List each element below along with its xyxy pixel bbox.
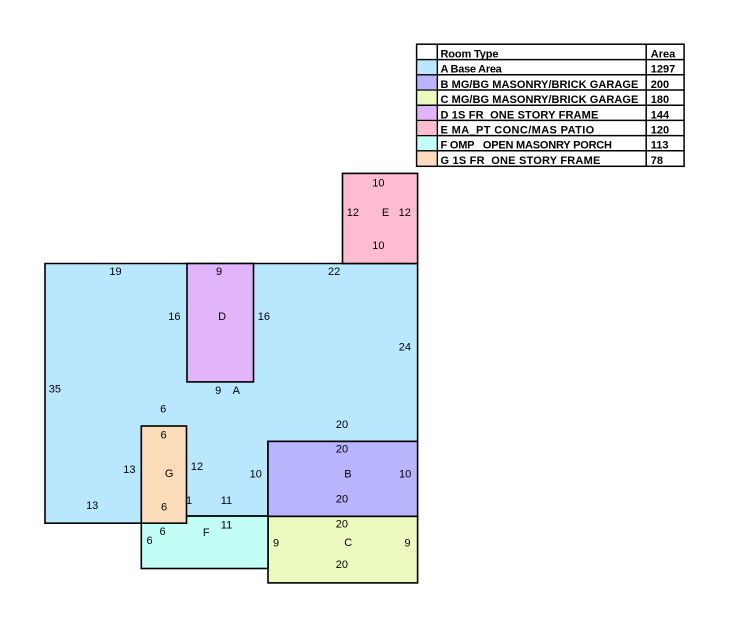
svg-text:16: 16 <box>168 311 180 323</box>
svg-text:11: 11 <box>221 520 232 532</box>
svg-text:A: A <box>233 385 241 397</box>
svg-text:C: C <box>344 537 352 549</box>
svg-text:D 1S FR ONE STORY FRAME: D 1S FR ONE STORY FRAME <box>441 109 599 121</box>
svg-text:10: 10 <box>372 240 384 252</box>
svg-text:24: 24 <box>399 342 411 354</box>
svg-text:1297: 1297 <box>651 64 675 76</box>
svg-text:20: 20 <box>336 493 348 505</box>
svg-text:20: 20 <box>336 419 348 431</box>
svg-text:35: 35 <box>49 383 61 395</box>
svg-text:12: 12 <box>399 207 411 219</box>
svg-text:Room Type: Room Type <box>441 49 499 61</box>
svg-text:13: 13 <box>86 500 98 512</box>
svg-text:Area: Area <box>651 49 676 61</box>
svg-text:B MG/BG MASONRY/BRICK GARAGE: B MG/BG MASONRY/BRICK GARAGE <box>441 79 639 91</box>
svg-text:78: 78 <box>651 155 663 167</box>
svg-text:6: 6 <box>147 535 153 547</box>
svg-text:F OMP OPEN MASONRY PORCH: F OMP OPEN MASONRY PORCH <box>441 140 613 152</box>
svg-text:G 1S FR ONE STORY FRAME: G 1S FR ONE STORY FRAME <box>441 155 601 167</box>
svg-text:E: E <box>382 207 389 219</box>
svg-text:10: 10 <box>399 468 411 480</box>
svg-text:20: 20 <box>336 559 348 571</box>
svg-text:20: 20 <box>336 444 348 456</box>
svg-text:10: 10 <box>250 468 262 480</box>
svg-text:E MA_PT CONC/MAS PATIO: E MA_PT CONC/MAS PATIO <box>441 125 595 137</box>
svg-text:20: 20 <box>336 518 348 530</box>
svg-text:16: 16 <box>258 311 270 323</box>
svg-text:10: 10 <box>372 177 384 189</box>
svg-text:9: 9 <box>215 385 221 397</box>
svg-text:6: 6 <box>160 526 166 538</box>
svg-text:144: 144 <box>651 109 670 121</box>
svg-text:B: B <box>344 469 351 481</box>
svg-text:113: 113 <box>651 140 669 152</box>
svg-text:120: 120 <box>651 125 669 137</box>
svg-text:6: 6 <box>160 404 166 416</box>
svg-text:9: 9 <box>273 537 279 549</box>
svg-text:12: 12 <box>191 461 203 473</box>
svg-text:A Base Area: A Base Area <box>441 64 503 76</box>
svg-text:D: D <box>218 311 226 323</box>
svg-text:G: G <box>165 468 174 480</box>
svg-text:F: F <box>203 527 210 539</box>
svg-text:1: 1 <box>186 495 192 507</box>
svg-text:9: 9 <box>405 537 411 549</box>
svg-text:6: 6 <box>160 429 166 441</box>
svg-text:11: 11 <box>221 495 232 507</box>
svg-text:6: 6 <box>161 501 167 513</box>
svg-text:22: 22 <box>328 266 340 278</box>
svg-text:200: 200 <box>651 79 669 91</box>
svg-text:C MG/BG MASONRY/BRICK GARAGE: C MG/BG MASONRY/BRICK GARAGE <box>441 94 639 106</box>
svg-text:19: 19 <box>109 266 121 278</box>
svg-text:13: 13 <box>123 464 135 476</box>
svg-text:180: 180 <box>651 94 669 106</box>
svg-text:9: 9 <box>216 266 222 278</box>
svg-text:12: 12 <box>347 207 359 219</box>
